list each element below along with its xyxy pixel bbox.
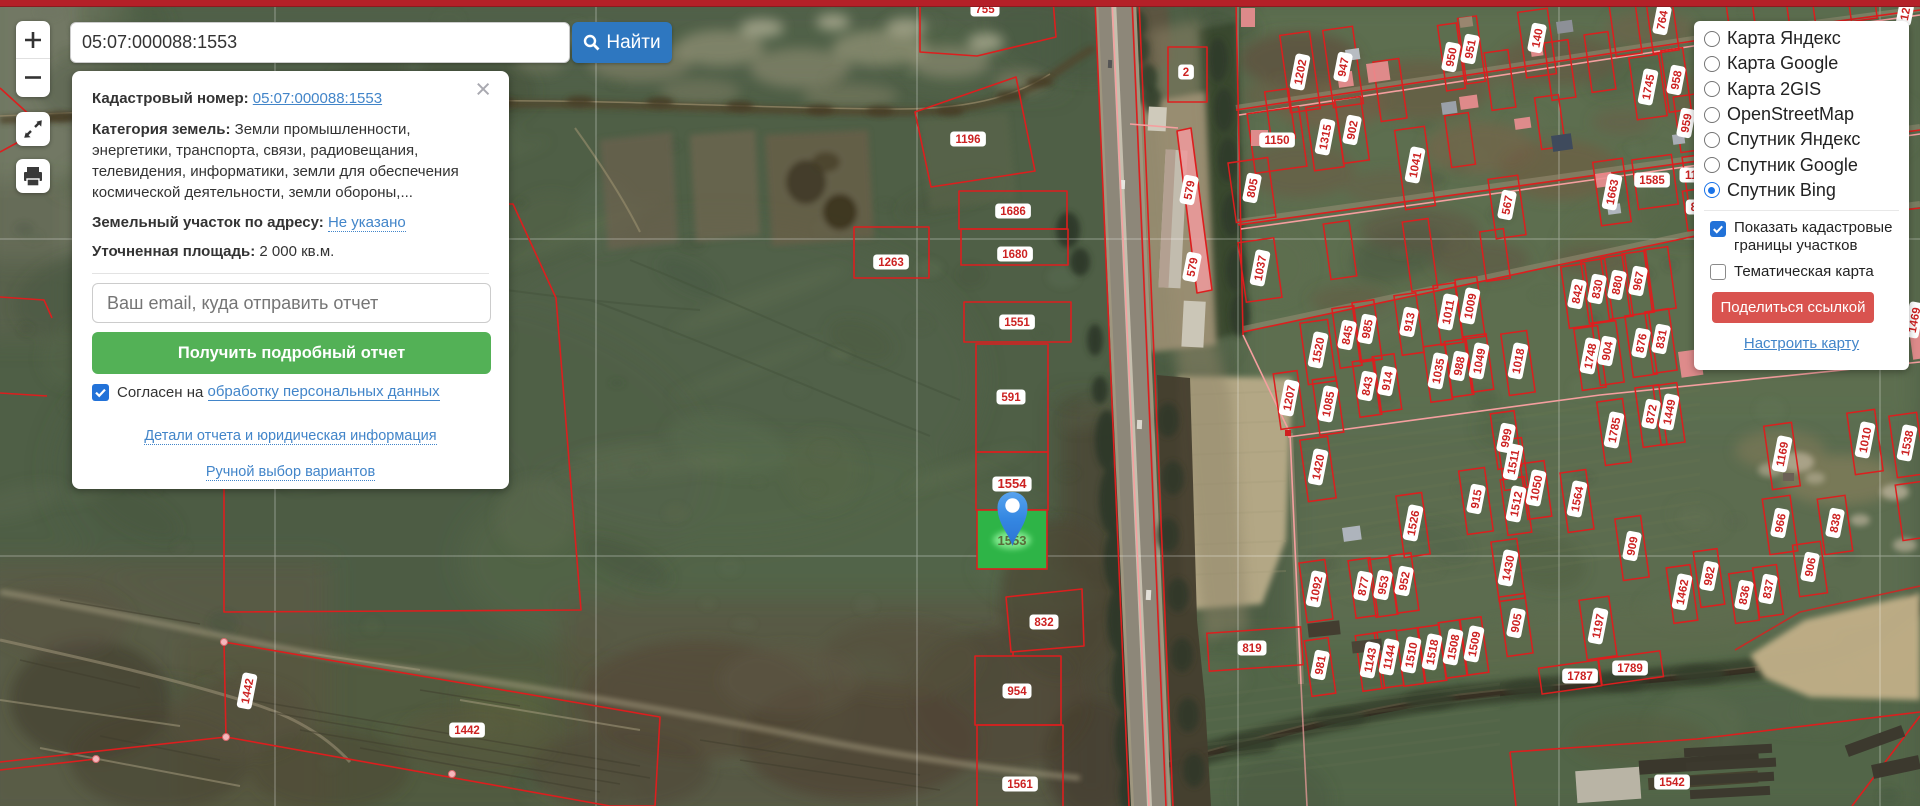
svg-text:1585: 1585: [1639, 175, 1665, 187]
svg-text:1686: 1686: [1000, 206, 1026, 218]
svg-text:832: 832: [1034, 617, 1053, 629]
svg-text:954: 954: [1007, 686, 1027, 698]
svg-text:591: 591: [1001, 392, 1021, 404]
svg-text:1561: 1561: [1007, 779, 1033, 791]
svg-text:819: 819: [1242, 643, 1261, 655]
svg-text:1542: 1542: [1659, 777, 1685, 789]
svg-text:1787: 1787: [1567, 671, 1593, 683]
svg-text:1554: 1554: [998, 476, 1028, 491]
svg-text:1680: 1680: [1002, 249, 1028, 261]
svg-text:12: 12: [1899, 7, 1913, 22]
svg-text:1150: 1150: [1265, 135, 1290, 147]
svg-text:1442: 1442: [454, 725, 480, 737]
svg-text:1789: 1789: [1617, 663, 1643, 675]
svg-text:2: 2: [1183, 67, 1189, 79]
svg-text:1196: 1196: [956, 134, 981, 146]
svg-text:1263: 1263: [878, 257, 904, 269]
svg-text:1551: 1551: [1004, 317, 1030, 329]
